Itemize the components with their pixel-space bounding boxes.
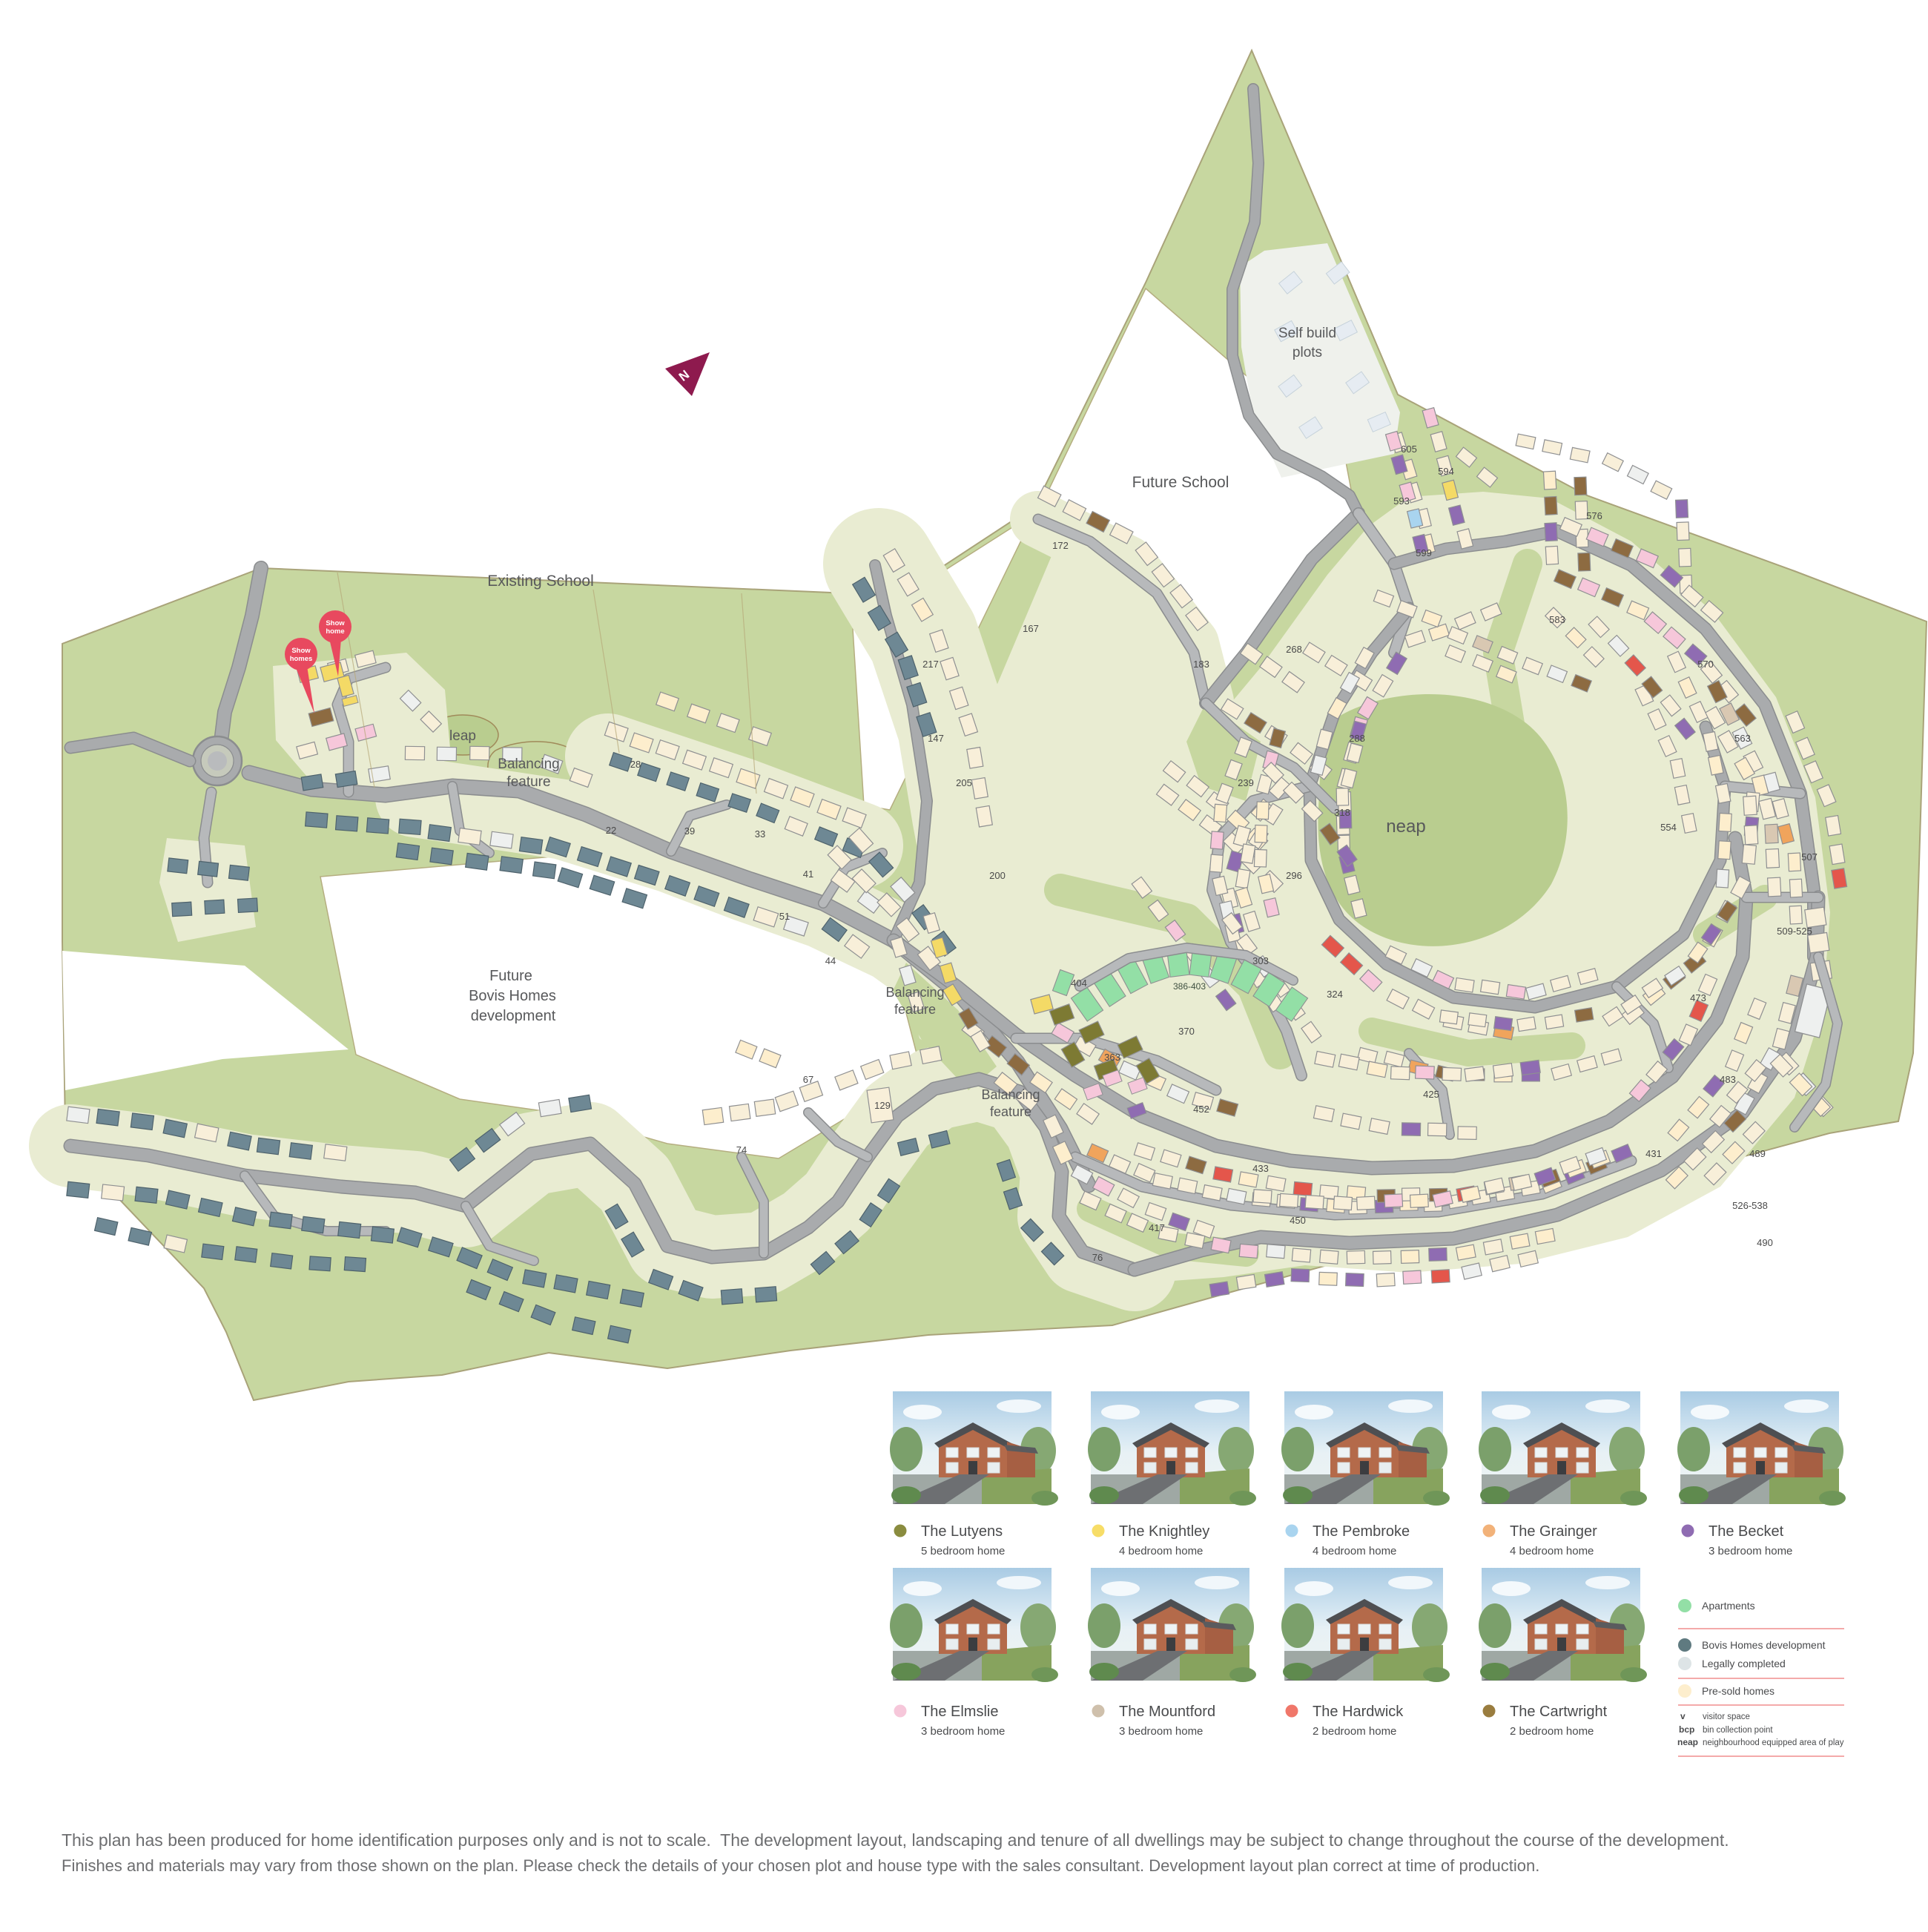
svg-text:593: 593	[1393, 495, 1410, 507]
svg-text:526-538: 526-538	[1732, 1200, 1768, 1211]
svg-text:217: 217	[922, 659, 939, 670]
svg-text:147: 147	[928, 733, 944, 744]
svg-text:2 bedroom home: 2 bedroom home	[1313, 1725, 1396, 1738]
svg-text:Existing School: Existing School	[487, 573, 594, 590]
svg-text:Legally completed: Legally completed	[1702, 1658, 1786, 1669]
svg-text:599: 599	[1416, 547, 1432, 558]
svg-text:Self build: Self build	[1278, 326, 1336, 341]
svg-text:The Cartwright: The Cartwright	[1510, 1704, 1608, 1720]
svg-text:The Lutyens: The Lutyens	[921, 1523, 1003, 1540]
svg-text:288: 288	[1349, 733, 1365, 744]
svg-text:452: 452	[1193, 1104, 1209, 1115]
svg-text:5 bedroom home: 5 bedroom home	[921, 1545, 1005, 1557]
svg-text:The Hardwick: The Hardwick	[1313, 1704, 1404, 1720]
svg-text:Balancing: Balancing	[981, 1087, 1040, 1102]
svg-text:Pre-sold homes: Pre-sold homes	[1702, 1685, 1775, 1697]
svg-text:v: v	[1680, 1711, 1686, 1721]
svg-text:Balancing: Balancing	[885, 985, 944, 1000]
svg-text:22: 22	[606, 825, 616, 836]
svg-text:Balancing: Balancing	[498, 756, 559, 772]
svg-text:Show: Show	[326, 619, 345, 627]
svg-text:386-403: 386-403	[1173, 981, 1206, 992]
svg-text:neap: neap	[1677, 1737, 1698, 1747]
svg-text:development: development	[471, 1008, 556, 1024]
svg-text:Show: Show	[291, 647, 311, 655]
svg-text:This plan has been produced fo: This plan has been produced for home ide…	[62, 1830, 1729, 1850]
svg-text:4 bedroom home: 4 bedroom home	[1510, 1545, 1594, 1557]
svg-text:51: 51	[779, 911, 790, 922]
svg-text:44: 44	[825, 955, 836, 966]
svg-text:Future School: Future School	[1132, 474, 1229, 491]
svg-text:Bovis Homes: Bovis Homes	[469, 988, 556, 1004]
svg-text:home: home	[326, 627, 344, 636]
svg-text:404: 404	[1071, 977, 1087, 989]
svg-text:268: 268	[1286, 644, 1302, 655]
svg-text:bin collection point: bin collection point	[1703, 1726, 1773, 1735]
svg-text:554: 554	[1660, 822, 1677, 833]
svg-text:3 bedroom home: 3 bedroom home	[1119, 1725, 1203, 1738]
svg-text:172: 172	[1052, 540, 1069, 551]
svg-text:296: 296	[1286, 870, 1302, 881]
svg-text:The Becket: The Becket	[1709, 1523, 1784, 1540]
svg-text:plots: plots	[1293, 345, 1322, 360]
svg-text:167: 167	[1023, 623, 1039, 634]
svg-text:feature: feature	[990, 1104, 1031, 1119]
svg-text:205: 205	[956, 777, 972, 788]
svg-text:Apartments: Apartments	[1702, 1600, 1755, 1612]
svg-text:neighbourhood equipped area of: neighbourhood equipped area of play	[1703, 1738, 1844, 1747]
svg-text:3 bedroom home: 3 bedroom home	[1709, 1545, 1792, 1557]
svg-text:489: 489	[1749, 1148, 1766, 1159]
svg-text:4 bedroom home: 4 bedroom home	[1119, 1545, 1203, 1557]
svg-text:74: 74	[736, 1144, 747, 1155]
svg-text:583: 583	[1549, 614, 1565, 625]
svg-text:2 bedroom home: 2 bedroom home	[1510, 1725, 1594, 1738]
svg-text:433: 433	[1252, 1163, 1269, 1174]
svg-text:483: 483	[1720, 1074, 1736, 1085]
svg-text:576: 576	[1586, 510, 1602, 521]
svg-text:450: 450	[1290, 1215, 1306, 1226]
svg-text:570: 570	[1697, 659, 1714, 670]
svg-text:bcp: bcp	[1679, 1724, 1694, 1735]
svg-text:239: 239	[1238, 777, 1254, 788]
svg-text:303: 303	[1252, 955, 1269, 966]
svg-text:Bovis Homes development: Bovis Homes development	[1702, 1639, 1826, 1651]
svg-text:200: 200	[989, 870, 1006, 881]
svg-text:The Mountford: The Mountford	[1119, 1704, 1215, 1720]
svg-text:324: 324	[1327, 989, 1343, 1000]
svg-text:129: 129	[874, 1100, 891, 1111]
svg-text:490: 490	[1757, 1237, 1773, 1248]
svg-text:417: 417	[1149, 1222, 1165, 1233]
svg-text:363: 363	[1104, 1052, 1120, 1063]
svg-text:Finishes and materials may var: Finishes and materials may vary from tho…	[62, 1856, 1539, 1875]
svg-text:507: 507	[1801, 851, 1818, 863]
svg-text:feature: feature	[894, 1002, 936, 1017]
svg-text:67: 67	[803, 1074, 813, 1085]
svg-text:The Elmslie: The Elmslie	[921, 1704, 998, 1720]
svg-text:370: 370	[1178, 1026, 1195, 1037]
svg-text:neap: neap	[1386, 817, 1425, 837]
svg-text:The Knightley: The Knightley	[1119, 1523, 1209, 1540]
svg-text:visitor space: visitor space	[1703, 1712, 1750, 1721]
svg-text:41: 41	[803, 868, 813, 880]
svg-text:4 bedroom home: 4 bedroom home	[1313, 1545, 1396, 1557]
svg-text:563: 563	[1734, 733, 1751, 744]
svg-text:homes: homes	[290, 655, 313, 663]
svg-text:28: 28	[630, 759, 641, 770]
svg-text:feature: feature	[506, 774, 550, 790]
svg-text:39: 39	[684, 825, 695, 837]
svg-text:The Grainger: The Grainger	[1510, 1523, 1597, 1540]
svg-text:318: 318	[1334, 807, 1350, 818]
svg-text:425: 425	[1423, 1089, 1439, 1100]
svg-text:3 bedroom home: 3 bedroom home	[921, 1725, 1005, 1738]
svg-text:509-525: 509-525	[1777, 926, 1812, 937]
svg-text:605: 605	[1401, 444, 1417, 455]
svg-text:33: 33	[755, 828, 765, 840]
svg-text:431: 431	[1645, 1148, 1662, 1159]
svg-text:Future: Future	[489, 968, 532, 984]
svg-text:leap: leap	[449, 728, 476, 744]
svg-text:183: 183	[1193, 659, 1209, 670]
svg-text:473: 473	[1690, 992, 1706, 1003]
svg-text:The Pembroke: The Pembroke	[1313, 1523, 1410, 1540]
svg-text:594: 594	[1438, 466, 1454, 477]
svg-text:76: 76	[1092, 1252, 1103, 1263]
